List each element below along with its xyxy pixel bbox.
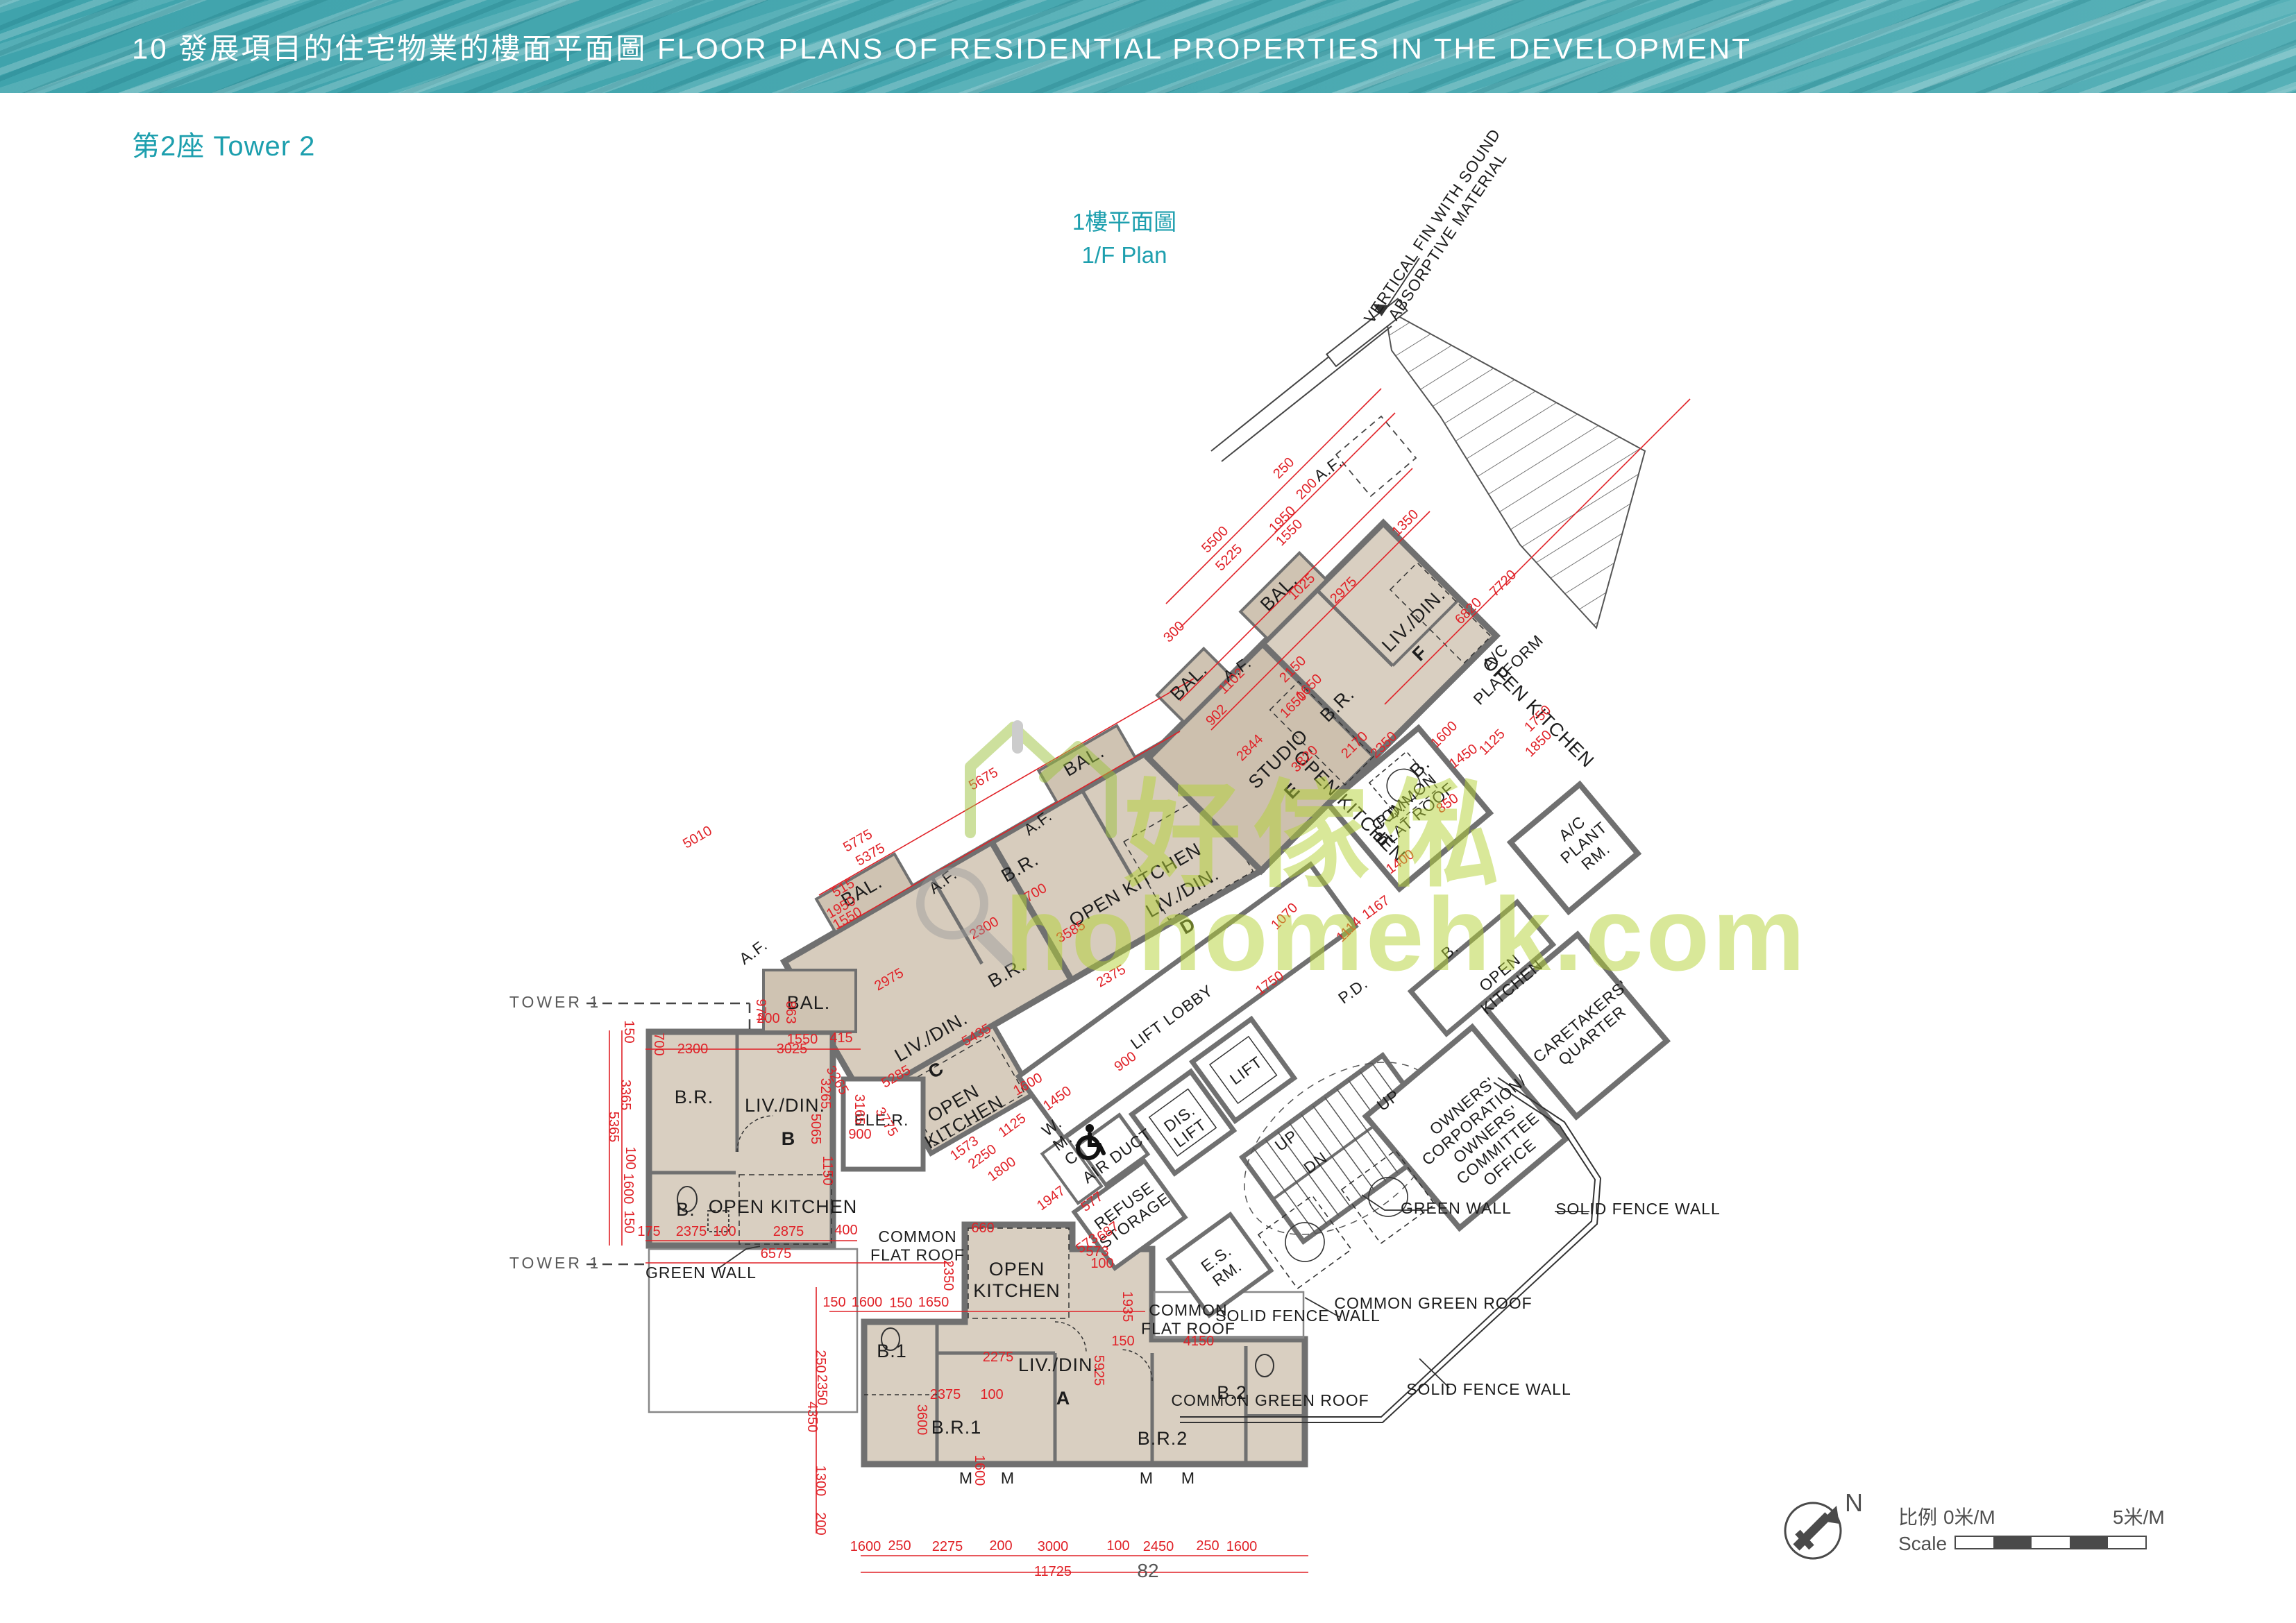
dimension-label: 1935 (1120, 1291, 1135, 1323)
plan-annotation: M (1181, 1469, 1195, 1487)
scale-end: 5米/M (2113, 1506, 2165, 1528)
north-letter: N (1845, 1488, 1863, 1517)
dimension-label: 2450 (1143, 1539, 1174, 1554)
dimension-label: 3265 (818, 1078, 833, 1110)
dimension-label: 863 (783, 1001, 798, 1023)
dimension-label: 2300 (677, 1042, 709, 1057)
dimension-label: 1600 (1226, 1539, 1258, 1554)
room-label: B.R. (675, 1087, 714, 1107)
dimension-label: 250 (813, 1350, 828, 1373)
dimension-label: 100 (713, 1224, 736, 1239)
watermark-domain: hohomehk.com (1005, 876, 1807, 992)
dimension-label: 3600 (914, 1404, 929, 1436)
dimension-label: 1600 (621, 1173, 636, 1205)
plan-annotation: COMMON GREEN ROOF (1334, 1294, 1532, 1312)
dimension-label: 2275 (983, 1350, 1014, 1365)
dimension-label: 3365 (618, 1080, 633, 1111)
scale-label-en: Scale (1898, 1533, 1947, 1554)
dimension-label: 1125 (1476, 726, 1508, 758)
plan-annotation: GREEN WALL (645, 1264, 757, 1282)
dimension-label: 2275 (932, 1539, 963, 1554)
dimension-label: 250 (1196, 1538, 1219, 1554)
dimension-label: 2350 (814, 1375, 829, 1406)
plan-annotation: VERTICAL FIN WITH SOUNDABSORPTIVE MATERI… (1360, 126, 1519, 337)
dimension-label: 150 (1111, 1334, 1134, 1349)
dimension-label: 5010 (680, 823, 715, 851)
room-label: LIV./DIN. (745, 1095, 825, 1116)
dimension-label: 1947 (1034, 1183, 1068, 1214)
floor-plan-drawing: LIV./DIN.CB.R.OPENKITCHENBAL.B.R.OPEN KI… (0, 0, 2296, 1623)
plan-annotation: COMMONFLAT ROOF (1141, 1301, 1235, 1337)
plan-annotation: TOWER 1 (509, 1254, 601, 1272)
dimension-label: 150 (621, 1210, 636, 1233)
plan-annotation: A.F. (736, 935, 771, 968)
dimension-label: 415 (829, 1030, 852, 1046)
room-label: LIV./DIN. (1018, 1354, 1099, 1375)
room-label: B.1 (877, 1341, 907, 1361)
dimension-label: 1600 (850, 1539, 881, 1554)
plan-annotation: M (1140, 1469, 1154, 1487)
dimension-label: 1450 (1446, 741, 1480, 772)
dimension-label: 1300 (813, 1465, 828, 1497)
dimension-label: 3025 (777, 1042, 808, 1057)
scale-bar: 比例 Scale 0米/M 5米/M (1898, 1506, 2165, 1554)
dimension-label: 1600 (852, 1295, 883, 1310)
dimension-label: 2375 (676, 1224, 707, 1239)
plan-annotation: M (959, 1469, 973, 1487)
dimension-label: 4350 (804, 1402, 820, 1433)
plan-annotation: SOLID FENCE WALL (1555, 1200, 1721, 1218)
room-label: A (1056, 1388, 1071, 1409)
dimension-label: 300 (1160, 618, 1188, 645)
dimension-label: 150 (621, 1020, 636, 1043)
plan-annotation: SOLID FENCE WALL (1406, 1380, 1571, 1398)
dimension-label: 3165 (852, 1094, 867, 1125)
dimension-label: 5065 (808, 1114, 823, 1145)
plan-annotation: M (1001, 1469, 1015, 1487)
dimension-label: 100 (1090, 1256, 1113, 1271)
dimension-label: 175 (637, 1224, 660, 1239)
dimension-label: 900 (848, 1127, 871, 1142)
dimension-label: 1600 (972, 1455, 987, 1486)
dimension-label: 1650 (918, 1295, 949, 1310)
dimension-label: 7720 (1487, 567, 1519, 600)
dimension-label: 100 (1106, 1538, 1129, 1554)
scale-label-zh: 比例 (1898, 1506, 1937, 1528)
room-label: B.R.1 (931, 1417, 982, 1438)
dimension-label: 250 (1270, 454, 1297, 482)
dimension-label: 150 (889, 1295, 912, 1311)
dimension-label: 1150 (820, 1155, 835, 1185)
scale-start: 0米/M (1943, 1506, 1995, 1528)
dimension-label: 4150 (1183, 1334, 1215, 1349)
dimension-label: 5925 (1091, 1355, 1106, 1386)
plan-annotation: COMMONFLAT ROOF (870, 1227, 965, 1264)
dimension-label: 100 (623, 1146, 638, 1169)
dimension-label: 660 (971, 1221, 994, 1236)
page-number: 82 (0, 1560, 2296, 1582)
dimension-label: 2350 (940, 1260, 956, 1291)
room-label: B. (676, 1199, 695, 1220)
dimension-label: 100 (980, 1387, 1003, 1402)
plan-annotation: GREEN WALL (1401, 1199, 1512, 1217)
dimension-label: 400 (834, 1223, 857, 1238)
dimension-label: 200 (757, 1011, 779, 1026)
plan-annotation: COMMON GREEN ROOF (1171, 1391, 1369, 1409)
dimension-label: 2875 (773, 1224, 804, 1239)
plan-annotation: TOWER 1 (509, 993, 601, 1011)
dimension-label: 700 (651, 1033, 666, 1055)
room-label: B (782, 1128, 796, 1149)
dimension-label: 150 (822, 1295, 845, 1310)
dimension-label: 5365 (606, 1112, 621, 1143)
dimension-label: 200 (813, 1512, 828, 1535)
dimension-label: 3000 (1038, 1539, 1069, 1554)
room-label: OPEN KITCHEN (709, 1196, 858, 1217)
dimension-label: 250 (888, 1538, 911, 1554)
dimension-label: 6575 (761, 1246, 792, 1261)
north-arrow: N (1785, 1488, 1863, 1558)
dimension-label: 2375 (930, 1387, 961, 1402)
brochure-page: 10 發展項目的住宅物業的樓面平面圖 FLOOR PLANS OF RESIDE… (0, 0, 2296, 1623)
dimension-label: 200 (989, 1538, 1012, 1554)
room-label: B.R.2 (1138, 1428, 1188, 1449)
